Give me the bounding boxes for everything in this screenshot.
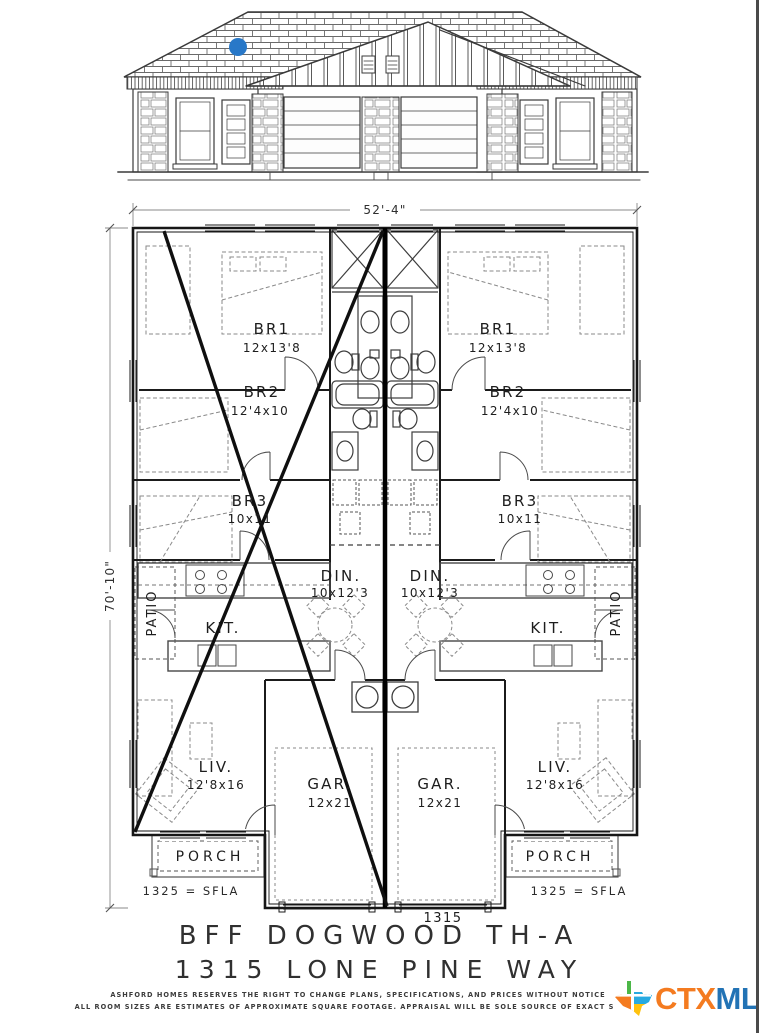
left-window (173, 98, 217, 169)
room-size-din-left: 10x12'3 (311, 586, 369, 600)
logo-ctx-text: CTX (655, 981, 716, 1017)
elevation-drawing (118, 12, 648, 180)
room-label-kit-left: KIT. (205, 619, 240, 637)
dimension-lines (105, 203, 641, 912)
floor-plan-drawing: 52'-4" 70'-10" (102, 203, 642, 926)
room-label-br1-right: BR1 (480, 320, 517, 338)
ctxmls-logo: CTXMLS (613, 978, 759, 1020)
room-label-br3-right: BR3 (502, 492, 539, 510)
room-size-br3-left: 10x11 (228, 512, 273, 526)
listing-marker-dot (229, 38, 247, 56)
room-label-kit-right: KIT. (530, 619, 565, 637)
room-label-gar-left: GAR. (307, 775, 352, 793)
room-size-br1-left: 12x13'8 (243, 341, 301, 355)
room-size-br3-right: 10x11 (498, 512, 543, 526)
plan-title: BFF DOGWOOD TH-A (0, 921, 759, 951)
room-size-din-right: 10x12'3 (401, 586, 459, 600)
room-label-patio-right: PATIO (609, 590, 624, 637)
right-window (553, 98, 597, 169)
room-label-liv-right: LIV. (538, 758, 573, 776)
sfla-label-right: 1325 = SFLA (531, 884, 628, 898)
room-label-din-left: DIN. (321, 567, 362, 585)
texas-icon (613, 979, 653, 1019)
disclaimer-line-1: ASHFORD HOMES RESERVES THE RIGHT TO CHAN… (38, 990, 678, 1002)
room-label-br2-right: BR2 (490, 383, 527, 401)
room-size-gar-right: 12x21 (418, 796, 463, 810)
room-size-br2-left: 12'4x10 (231, 404, 289, 418)
disclaimer-line-2: ALL ROOM SIZES ARE ESTIMATES OF APPROXIM… (38, 1002, 678, 1014)
room-label-br1-left: BR1 (254, 320, 291, 338)
room-label-gar-right: GAR. (417, 775, 462, 793)
room-label-porch-right: PORCH (526, 849, 595, 865)
listing-floorplan-image: 52'-4" 70'-10" (0, 0, 759, 1033)
sfla-label-left: 1325 = SFLA (143, 884, 240, 898)
room-label-porch-left: PORCH (176, 849, 245, 865)
room-size-br1-right: 12x13'8 (469, 341, 527, 355)
logo-mls-text: MLS (716, 981, 759, 1017)
dim-height-label: 70'-10" (103, 560, 117, 612)
room-label-br2-left: BR2 (244, 383, 281, 401)
room-label-din-right: DIN. (410, 567, 451, 585)
right-entry-door (520, 100, 548, 164)
room-label-patio-left: PATIO (145, 590, 160, 637)
room-size-liv-left: 12'8x16 (187, 778, 245, 792)
room-size-liv-right: 12'8x16 (526, 778, 584, 792)
room-label-br3-left: BR3 (232, 492, 269, 510)
room-size-gar-left: 12x21 (308, 796, 353, 810)
room-size-br2-right: 12'4x10 (481, 404, 539, 418)
left-entry-door (222, 100, 250, 164)
disclaimer-text: ASHFORD HOMES RESERVES THE RIGHT TO CHAN… (38, 990, 678, 1013)
dim-width-label: 52'-4" (363, 203, 406, 217)
drawing-canvas: 52'-4" 70'-10" (0, 0, 759, 1033)
room-label-liv-left: LIV. (199, 758, 234, 776)
